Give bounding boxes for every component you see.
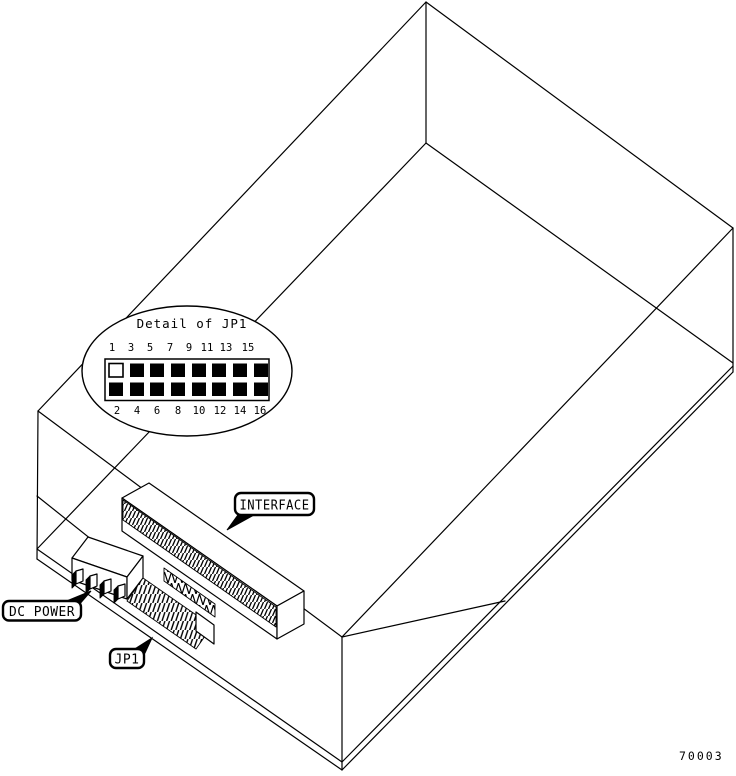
jumper-pad bbox=[150, 383, 164, 397]
jp1-pin-field bbox=[127, 578, 212, 649]
pin-number: 16 bbox=[254, 405, 267, 417]
callout-title: Detail of JP1 bbox=[137, 316, 248, 331]
pin-number: 9 bbox=[186, 342, 192, 354]
jp1-label: JP1 bbox=[110, 638, 152, 668]
drive-isometric-drawing: Detail of JP1 1 3 5 7 9 11 13 15 bbox=[0, 0, 736, 776]
jumper-pad-1-open bbox=[109, 364, 123, 378]
jumper-pad bbox=[212, 383, 226, 397]
jumper-pad bbox=[171, 364, 185, 378]
jumper-pad bbox=[254, 364, 268, 378]
figure-number: 70003 bbox=[679, 749, 724, 763]
pin-number: 14 bbox=[234, 405, 247, 417]
interface-label: INTERFACE bbox=[227, 493, 314, 530]
pin-number: 3 bbox=[128, 342, 134, 354]
jumper-pad bbox=[130, 383, 144, 397]
left-vertical-edge bbox=[37, 411, 38, 559]
interface-label-text: INTERFACE bbox=[240, 499, 310, 514]
pin-number: 8 bbox=[175, 405, 181, 417]
inner-right-edge bbox=[426, 143, 733, 363]
jumper-pad bbox=[150, 364, 164, 378]
base-strip-right-inner bbox=[342, 366, 733, 762]
pin-number: 10 bbox=[193, 405, 206, 417]
technical-diagram: Detail of JP1 1 3 5 7 9 11 13 15 bbox=[0, 0, 736, 776]
jp1-label-text: JP1 bbox=[115, 653, 140, 668]
pin-number: 4 bbox=[134, 405, 140, 417]
jumper-pad bbox=[254, 383, 268, 397]
dc-power-label-text: DC POWER bbox=[9, 605, 75, 620]
pin-number: 6 bbox=[154, 405, 160, 417]
pin-number: 13 bbox=[220, 342, 233, 354]
dc-power-label: DC POWER bbox=[3, 591, 91, 621]
jumper-pad bbox=[192, 364, 206, 378]
detail-callout: Detail of JP1 1 3 5 7 9 11 13 15 bbox=[82, 306, 292, 436]
top-right-edge bbox=[426, 2, 733, 228]
pin-number: 7 bbox=[167, 342, 173, 354]
pin-number: 5 bbox=[147, 342, 153, 354]
jumper-pad bbox=[233, 383, 247, 397]
pin-number: 12 bbox=[214, 405, 227, 417]
pin-number: 2 bbox=[114, 405, 120, 417]
bottom-face-edge bbox=[342, 601, 505, 637]
pin-number: 1 bbox=[109, 342, 115, 354]
jumper-pad bbox=[212, 364, 226, 378]
jumper-pad bbox=[109, 383, 123, 397]
jumper-pad bbox=[192, 383, 206, 397]
pin-number: 15 bbox=[242, 342, 255, 354]
jumper-pad bbox=[171, 383, 185, 397]
jumper-pad bbox=[130, 364, 144, 378]
pin-number: 11 bbox=[201, 342, 214, 354]
jumper-pad bbox=[233, 364, 247, 378]
